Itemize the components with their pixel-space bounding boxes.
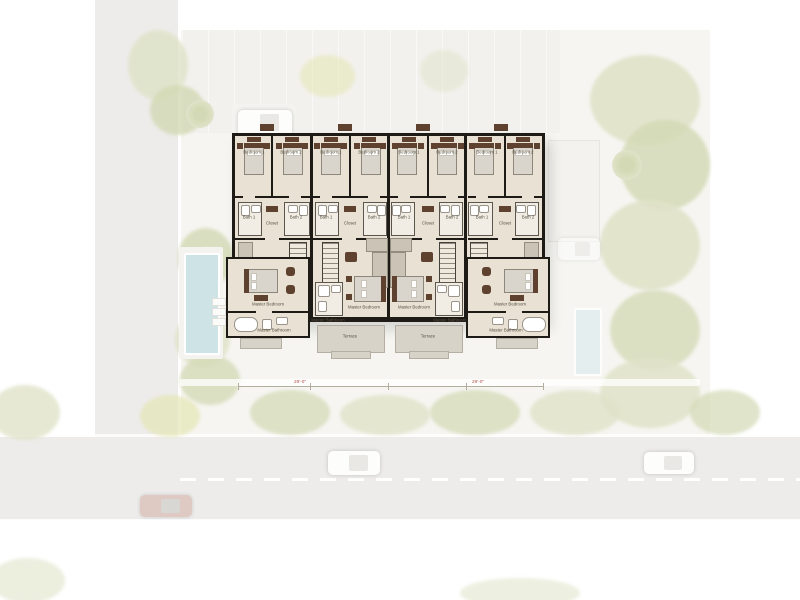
room-label: Bedroom 1 xyxy=(476,151,497,155)
toilet xyxy=(241,205,250,216)
toilet xyxy=(377,205,386,216)
room-label: Master Bedroom xyxy=(348,306,380,310)
nightstand xyxy=(392,143,398,149)
room-label: Bath 1 xyxy=(398,216,410,220)
tree-icon xyxy=(430,390,520,435)
toilet xyxy=(451,301,460,312)
side-patio xyxy=(548,140,600,242)
unit-furniture xyxy=(390,136,466,319)
kitchen-counter xyxy=(390,238,412,252)
dimension-tick xyxy=(238,383,239,390)
dresser xyxy=(402,137,416,142)
dresser xyxy=(478,137,492,142)
sink xyxy=(437,285,447,293)
interior-wall xyxy=(504,136,506,198)
room-label: Bath 1 xyxy=(320,216,332,220)
bed xyxy=(437,143,457,175)
entry-planter xyxy=(260,124,274,131)
bed xyxy=(474,143,494,175)
nightstand xyxy=(302,143,308,149)
room-label: Closet xyxy=(422,222,434,226)
interior-wall xyxy=(427,136,429,198)
car-icon xyxy=(328,451,380,475)
room-label: Master Bathroom xyxy=(311,319,344,323)
interior-wall xyxy=(235,196,243,198)
lounger-icon xyxy=(212,308,226,316)
sink xyxy=(516,205,526,213)
road-center-line xyxy=(180,478,800,481)
dimension-tick xyxy=(466,383,467,390)
sink xyxy=(440,205,450,213)
interior-wall xyxy=(312,196,320,198)
room-label: Master Bathroom xyxy=(433,319,466,323)
closet-cabinet xyxy=(344,206,356,212)
dresser xyxy=(254,295,268,301)
room-label: Master Bedroom xyxy=(252,303,284,307)
room-label: Master Bathroom xyxy=(489,329,522,333)
room-label: Bath 1 xyxy=(476,216,488,220)
closet-cabinet xyxy=(422,206,434,212)
sink xyxy=(288,205,298,213)
dining-table xyxy=(345,252,357,262)
nightstand xyxy=(507,143,513,149)
armchair xyxy=(482,285,491,294)
interior-wall xyxy=(458,196,466,198)
unit-3: Bedroom 1 Bedroom 2 Bath 1 Bath 2 Closet… xyxy=(390,136,466,319)
terrace-step xyxy=(331,351,371,359)
bed xyxy=(321,143,341,175)
armchair xyxy=(286,285,295,294)
nightstand xyxy=(495,143,501,149)
room-label: Terrace xyxy=(421,335,435,339)
interior-wall xyxy=(228,311,256,313)
interior-wall xyxy=(488,196,522,198)
bathtub xyxy=(234,317,258,332)
master-bathroom-room xyxy=(435,282,463,316)
entry-planter xyxy=(338,124,352,131)
room-label: Master Bedroom xyxy=(398,306,430,310)
room-label: Master Bathroom xyxy=(257,329,290,333)
nightstand xyxy=(426,276,432,282)
terrace-step xyxy=(409,351,449,359)
armchair xyxy=(482,267,491,276)
nightstand xyxy=(346,294,352,300)
interior-wall xyxy=(468,196,476,198)
interior-wall xyxy=(301,196,310,198)
nightstand xyxy=(276,143,282,149)
interior-wall xyxy=(255,196,289,198)
toilet xyxy=(318,205,327,216)
tree-icon xyxy=(690,390,760,435)
armchair xyxy=(286,267,295,276)
tree-icon xyxy=(530,390,620,435)
tree-icon xyxy=(340,395,430,435)
dresser xyxy=(324,137,338,142)
unit-furniture xyxy=(312,136,388,319)
sink xyxy=(479,205,489,213)
room-label: Bedroom 2 xyxy=(512,151,533,155)
tree-icon xyxy=(420,50,468,92)
interior-wall xyxy=(468,238,498,240)
nightstand xyxy=(264,143,270,149)
nightstand xyxy=(341,143,347,149)
room-label: Bedroom 2 xyxy=(358,151,379,155)
bathtub xyxy=(522,317,546,332)
nightstand xyxy=(534,143,540,149)
room-label: Closet xyxy=(344,222,356,226)
bed xyxy=(397,143,417,175)
tree-icon xyxy=(600,200,700,290)
dresser xyxy=(247,137,261,142)
room-label: Closet xyxy=(499,222,511,226)
dresser xyxy=(510,295,524,301)
unit-2: Bedroom 1 Bedroom 2 Bath 1 Bath 2 Closet… xyxy=(312,136,388,319)
road-edge-line xyxy=(0,434,800,437)
bed xyxy=(504,269,538,293)
tree-icon xyxy=(0,558,65,600)
entry-planter xyxy=(494,124,508,131)
tree-icon xyxy=(300,55,355,97)
nightstand xyxy=(418,143,424,149)
pool-icon xyxy=(574,308,602,376)
sink xyxy=(401,205,411,213)
walkway xyxy=(180,379,700,386)
car-icon xyxy=(644,452,694,474)
interior-wall xyxy=(312,238,342,240)
unit-1-master-suite: Master Bedroom Master Bathroom xyxy=(226,257,310,338)
nightstand xyxy=(314,143,320,149)
interior-wall xyxy=(436,238,466,240)
interior-wall xyxy=(272,311,310,313)
dimension-text: 29'-0" xyxy=(294,380,306,385)
bed xyxy=(244,143,264,175)
dresser xyxy=(285,137,299,142)
sink xyxy=(331,285,341,293)
interior-wall xyxy=(380,196,388,198)
interior-wall xyxy=(534,196,542,198)
dimension-line xyxy=(238,386,543,387)
site-plan: 29'-0" 29'-0" xyxy=(0,0,800,600)
room-label: Closet xyxy=(266,222,278,226)
interior-wall xyxy=(332,196,368,198)
toilet xyxy=(318,301,327,312)
tree-icon xyxy=(460,578,580,600)
interior-wall xyxy=(468,311,506,313)
room-label: Bedroom 1 xyxy=(243,151,264,155)
toilet xyxy=(299,205,308,216)
master-bathroom-room xyxy=(315,282,343,316)
kitchen-counter xyxy=(366,238,388,252)
bed xyxy=(513,143,533,175)
interior-wall xyxy=(279,238,310,240)
room-label: Terrace xyxy=(343,335,357,339)
dresser xyxy=(362,137,376,142)
interior-wall xyxy=(271,136,273,198)
lounger-icon xyxy=(212,318,226,326)
tree-icon xyxy=(0,385,60,440)
sink xyxy=(328,205,338,213)
interior-wall xyxy=(349,136,351,198)
room-label: Bath 2 xyxy=(290,216,302,220)
dining-table xyxy=(421,252,433,262)
sink xyxy=(492,317,504,325)
nightstand xyxy=(458,143,464,149)
palm-tree-icon xyxy=(186,100,214,128)
interior-wall xyxy=(235,238,265,240)
dimension-tick xyxy=(310,383,311,390)
nightstand xyxy=(237,143,243,149)
porch xyxy=(496,338,538,349)
interior-wall xyxy=(390,196,398,198)
shower xyxy=(448,285,460,297)
nightstand xyxy=(346,276,352,282)
sink xyxy=(251,205,261,213)
room-label: Bath 2 xyxy=(368,216,380,220)
tree-icon xyxy=(250,390,330,435)
toilet xyxy=(392,205,401,216)
interior-wall xyxy=(512,238,542,240)
dresser xyxy=(516,137,530,142)
bed xyxy=(392,276,424,302)
sink xyxy=(276,317,288,325)
car-icon xyxy=(558,238,600,260)
closet-cabinet xyxy=(499,206,511,212)
room-label: Master Bedroom xyxy=(494,303,526,307)
tree-icon xyxy=(140,395,200,437)
closet-cabinet xyxy=(266,206,278,212)
porch xyxy=(240,338,282,349)
road-edge-line xyxy=(92,0,95,437)
nightstand xyxy=(380,143,386,149)
room-label: Bedroom 2 xyxy=(280,151,301,155)
room-label: Bath 2 xyxy=(522,216,534,220)
room-label: Bath 2 xyxy=(446,216,458,220)
interior-wall xyxy=(522,311,550,313)
dresser xyxy=(440,137,454,142)
nightstand xyxy=(469,143,475,149)
bed xyxy=(244,269,278,293)
toilet xyxy=(527,205,536,216)
nightstand xyxy=(354,143,360,149)
road-edge-line xyxy=(0,519,800,522)
nightstand xyxy=(431,143,437,149)
dimension-tick xyxy=(388,383,389,390)
lounger-icon xyxy=(212,298,226,306)
dimension-tick xyxy=(543,383,544,390)
interior-wall xyxy=(410,196,446,198)
toilet xyxy=(470,205,479,216)
nightstand xyxy=(426,294,432,300)
room-label: Bath 1 xyxy=(243,216,255,220)
unit-4-master-suite: Master Bedroom Master Bathroom xyxy=(466,257,550,338)
shower xyxy=(318,285,330,297)
room-label: Bedroom 2 xyxy=(436,151,457,155)
dimension-text: 29'-0" xyxy=(472,380,484,385)
car-icon xyxy=(140,495,192,517)
sink xyxy=(367,205,377,213)
bed xyxy=(354,276,386,302)
bed xyxy=(283,143,303,175)
room-label: Bedroom 1 xyxy=(398,151,419,155)
bed xyxy=(361,143,381,175)
room-label: Bedroom 1 xyxy=(320,151,341,155)
toilet xyxy=(451,205,460,216)
entry-planter xyxy=(416,124,430,131)
palm-tree-icon xyxy=(612,150,642,180)
